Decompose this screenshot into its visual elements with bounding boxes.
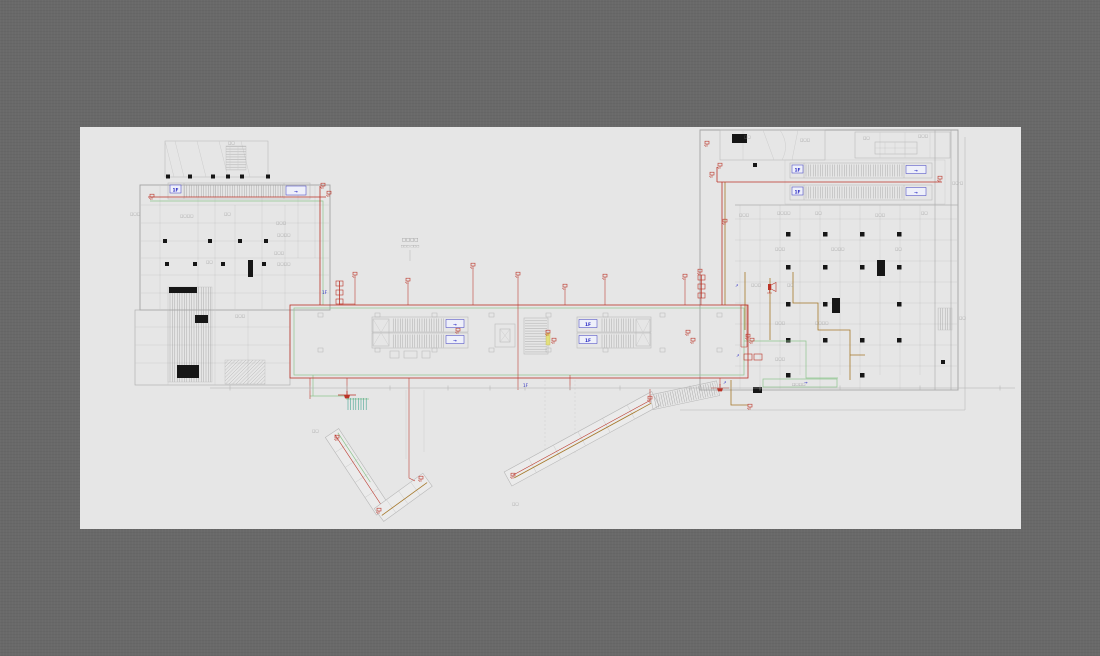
room-label: □□□ (235, 314, 245, 318)
floor-mark: 1F (322, 290, 328, 295)
escalator-floor-tag: 1F (585, 322, 591, 328)
edge-note-label: □□ (959, 316, 966, 320)
drawing-canvas: 1F → 1F → 1F → → → 1F 1F 1F (80, 127, 1021, 529)
concourse (318, 313, 722, 457)
corridor-left-arm1 (325, 429, 390, 515)
room-label: □□ (921, 211, 928, 215)
left-wing-walls (135, 185, 330, 385)
escalator-direction-tag: → (914, 191, 918, 196)
room-label: □□ (224, 212, 231, 216)
blue-arrow-mark: ↗ (736, 353, 740, 358)
room-label: □□ (863, 136, 870, 140)
green-box-label: □□□□ (792, 383, 806, 387)
room-label: □□□ (276, 221, 286, 225)
center-stair (524, 318, 550, 354)
desktop-background: 1F → 1F → 1F → → → 1F 1F 1F (0, 0, 1100, 656)
room-label: □□□ (875, 213, 885, 217)
escalator-floor-tag: 1F (794, 167, 800, 173)
corridor-label: □□ (312, 429, 319, 433)
room-label: □□□ (775, 357, 785, 361)
room-label: □□□ (775, 247, 785, 251)
room-label: □□□□ (277, 262, 291, 266)
corridor-left-shaft (406, 390, 424, 459)
room-label: □□ (744, 135, 751, 139)
corridor-right-stairs (650, 381, 720, 410)
escalator-direction-tag: → (294, 190, 298, 195)
fan-entrance (165, 141, 268, 177)
room-label: □□ (787, 283, 794, 287)
room-label: □□□ (130, 212, 140, 216)
entrance-corridors (325, 381, 719, 522)
elevator (495, 324, 515, 347)
title-block: □□□□ □□□ □□□ (401, 238, 420, 261)
escalator-direction-tag: → (914, 169, 918, 174)
blue-arrow-mark: ↗ (735, 283, 739, 288)
escalator-floor-tag: 1F (585, 338, 591, 344)
corridor-label: □□ (512, 502, 519, 506)
escalator-floor-tag: 1F (172, 187, 178, 193)
escalator-direction-tag: → (453, 323, 457, 328)
blue-arrow-mark: ↗ (723, 380, 727, 385)
plan-title: □□□□ (402, 238, 419, 243)
room-label: □□ (895, 247, 902, 251)
corridor-right (504, 392, 659, 486)
floor-plan: 1F → 1F → 1F → → → 1F 1F 1F (80, 127, 1021, 529)
room-label: □□□ (918, 134, 928, 138)
escalator-direction-tag: → (453, 339, 457, 344)
plan-subtitle: □□□ □□□ (401, 244, 420, 248)
room-label: □□□ (274, 251, 284, 255)
room-label: □□□ (751, 283, 761, 287)
room-label: □□ (228, 141, 235, 145)
room-label: □□□□ (777, 211, 791, 215)
room-label: □□□□ (180, 214, 194, 218)
escalator-floor-tag: 1F (794, 189, 800, 195)
room-label: □□□□ (815, 321, 829, 325)
dimension-floor-mark: 1F (523, 383, 529, 388)
room-label: □□ (815, 211, 822, 215)
room-label: □□□□ (831, 247, 845, 251)
room-label: □□□ (800, 138, 810, 142)
teal-cable-bundle (348, 398, 366, 410)
left-wing (135, 141, 330, 385)
room-label: □□□□ (277, 233, 291, 237)
room-label: □□□ (739, 213, 749, 217)
room-label: □□ (206, 260, 213, 264)
note-label: □□·□ (952, 181, 963, 185)
room-label: □□□ (775, 321, 785, 325)
